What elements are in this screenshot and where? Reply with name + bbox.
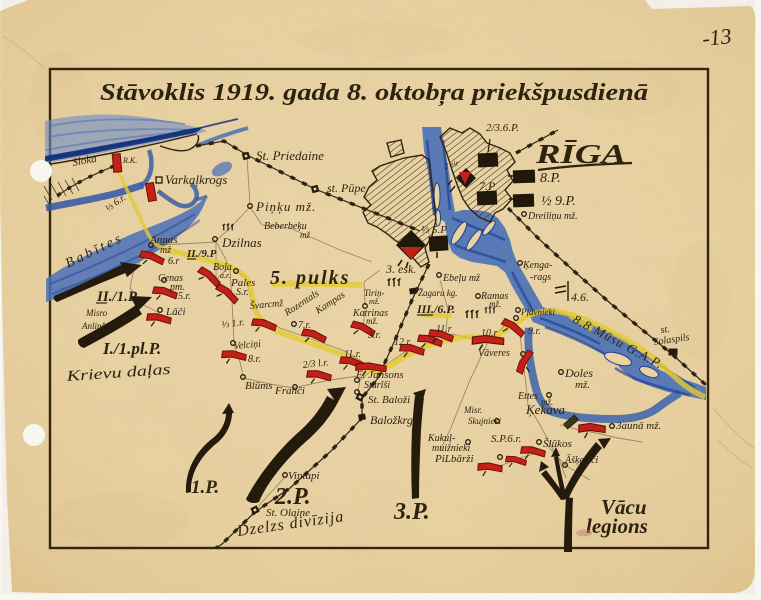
svg-text:Ettes: Ettes bbox=[517, 391, 538, 402]
svg-text:St. Baloži: St. Baloži bbox=[368, 394, 410, 406]
svg-text:III./6.P.: III./6.P. bbox=[416, 302, 455, 316]
svg-text:12.r.: 12.r. bbox=[394, 337, 412, 348]
svg-text:Žagaru kg.: Žagaru kg. bbox=[418, 288, 458, 298]
svg-text:II./9.P: II./9.P bbox=[186, 248, 217, 260]
svg-text:3.r.: 3.r. bbox=[367, 330, 381, 341]
svg-text:E. Jansons: E. Jansons bbox=[355, 369, 404, 381]
svg-text:Vāveres: Vāveres bbox=[478, 348, 510, 359]
svg-text:Ebeļu mž: Ebeļu mž bbox=[442, 273, 481, 284]
svg-text:Varkaļkrogs: Varkaļkrogs bbox=[165, 172, 227, 187]
svg-text:9.r.: 9.r. bbox=[528, 326, 541, 337]
svg-text:S.r.: S.r. bbox=[236, 287, 249, 298]
svg-text:Pļavnieki: Pļavnieki bbox=[520, 307, 555, 318]
svg-text:-rags: -rags bbox=[530, 272, 551, 283]
svg-text:Anliņš: Anliņš bbox=[81, 321, 105, 332]
svg-text:3aunā mž.: 3aunā mž. bbox=[615, 420, 661, 432]
svg-text:Stūrīši: Stūrīši bbox=[364, 380, 390, 391]
svg-text:Misro: Misro bbox=[85, 308, 108, 318]
svg-text:7.r.: 7.r. bbox=[298, 320, 311, 331]
svg-text:Baložkrg.: Baložkrg. bbox=[370, 413, 416, 427]
svg-text:8.P.: 8.P. bbox=[540, 171, 561, 186]
svg-text:Lāči: Lāči bbox=[165, 306, 186, 318]
svg-text:6.r: 6.r bbox=[168, 256, 180, 267]
svg-text:11.r.: 11.r. bbox=[344, 349, 361, 360]
svg-text:st. Pūpe: st. Pūpe bbox=[327, 181, 366, 195]
svg-text:mž.: mž. bbox=[366, 316, 378, 326]
svg-text:legions: legions bbox=[586, 514, 648, 538]
svg-text:5.r.: 5.r. bbox=[178, 291, 191, 302]
svg-text:8.r.: 8.r. bbox=[248, 354, 261, 365]
svg-text:-13: -13 bbox=[701, 23, 733, 51]
svg-text:St. Priedaine: St. Priedaine bbox=[256, 148, 324, 163]
svg-text:Ķenga-: Ķenga- bbox=[522, 260, 552, 271]
svg-text:R.K.: R.K. bbox=[122, 156, 137, 165]
svg-text:10.r: 10.r bbox=[481, 328, 498, 339]
svg-text:7.P: 7.P bbox=[479, 179, 496, 193]
svg-text:mž.: mž. bbox=[575, 379, 590, 391]
svg-text:Franči: Franči bbox=[274, 385, 305, 397]
svg-text:11.r: 11.r bbox=[436, 324, 452, 335]
svg-text:3. esk.: 3. esk. bbox=[385, 262, 416, 276]
svg-text:Āšķeviči: Āšķeviči bbox=[564, 454, 599, 466]
svg-text:Dzilnas: Dzilnas bbox=[221, 235, 262, 250]
svg-text:3.P.: 3.P. bbox=[393, 499, 430, 525]
svg-text:Stāvoklis 1919. gada 8. oktobŗ: Stāvoklis 1919. gada 8. oktobŗa priekšpu… bbox=[100, 80, 648, 107]
svg-text:Skujnieki: Skujnieki bbox=[468, 416, 501, 426]
svg-text:mž.: mž. bbox=[489, 299, 501, 309]
svg-text:S.P.6.r.: S.P.6.r. bbox=[491, 433, 521, 445]
svg-text:I./1.pl.P.: I./1.pl.P. bbox=[102, 339, 161, 358]
svg-text:Šlūkos: Šlūkos bbox=[543, 438, 572, 450]
svg-text:a.r.: a.r. bbox=[220, 271, 230, 280]
svg-text:Doles: Doles bbox=[564, 366, 593, 380]
svg-text:½ 9.P.: ½ 9.P. bbox=[541, 194, 576, 209]
svg-text:Ķekava: Ķekava bbox=[525, 402, 565, 417]
svg-text:mž: mž bbox=[300, 230, 310, 240]
svg-text:mž.: mž. bbox=[369, 297, 380, 306]
svg-text:Dreiliņu mž.: Dreiliņu mž. bbox=[527, 211, 578, 222]
svg-text:Blūms: Blūms bbox=[245, 380, 273, 392]
svg-text:⅓ 5.P: ⅓ 5.P bbox=[421, 224, 447, 236]
svg-text:Piņķu mž.: Piņķu mž. bbox=[255, 199, 316, 214]
svg-text:mž: mž bbox=[160, 245, 172, 256]
svg-text:5. pulks: 5. pulks bbox=[270, 267, 350, 289]
svg-text:Misr.: Misr. bbox=[463, 405, 482, 415]
svg-text:4.6.: 4.6. bbox=[571, 290, 589, 304]
svg-text:Vintapi: Vintapi bbox=[288, 470, 320, 482]
svg-text:PiLbārži: PiLbārži bbox=[434, 453, 474, 465]
svg-text:2/3.6.P.: 2/3.6.P. bbox=[486, 122, 519, 134]
svg-text:1.P.: 1.P. bbox=[191, 477, 219, 498]
